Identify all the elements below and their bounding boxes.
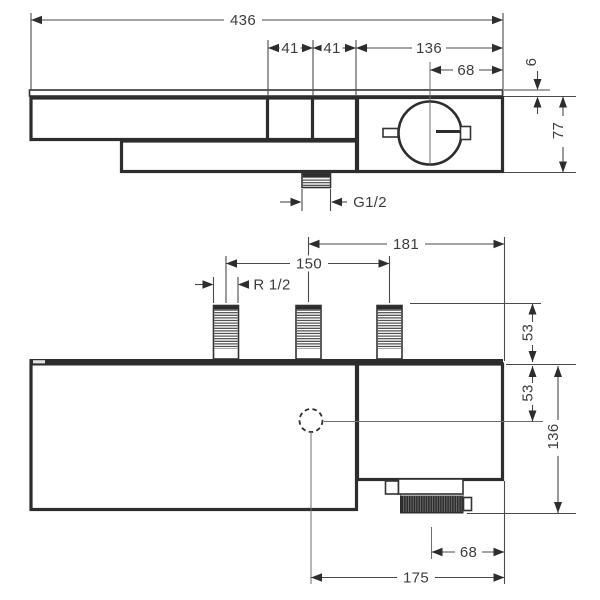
front-shelf-bar <box>31 98 357 140</box>
plan-left-body <box>31 363 357 510</box>
plan-knob-knurl <box>402 496 462 513</box>
dim-top-to-center: 53 <box>520 384 537 401</box>
dim-front-handle-offset: 68 <box>457 62 474 79</box>
dim-handle-span: 181 <box>393 236 419 253</box>
dim-outlet-thread: G1/2 <box>353 194 387 211</box>
front-outlet-cap <box>303 174 330 177</box>
dim-total-depth: 136 <box>545 424 562 450</box>
front-top-plate <box>30 90 503 96</box>
plan-pipe-1 <box>214 306 239 360</box>
plan-knob-tab <box>464 498 472 511</box>
dim-body-height: 77 <box>550 122 567 139</box>
technical-drawing: 436 41 41 136 68 6 77 <box>0 0 600 600</box>
dim-pipe-thread: R 1/2 <box>253 277 290 294</box>
dim-button1-width: 41 <box>281 40 298 57</box>
plan-pipe-3 <box>377 306 402 360</box>
dim-pipe-spacing: 150 <box>296 256 322 273</box>
plan-top-band-notch <box>33 360 45 363</box>
dim-plate-thickness: 6 <box>523 58 540 67</box>
dim-overall-width: 436 <box>230 12 256 29</box>
front-right-tab <box>461 127 471 140</box>
front-left-tab <box>383 129 398 138</box>
dim-pipe-length: 53 <box>520 324 537 341</box>
dim-button2-width: 41 <box>323 40 340 57</box>
front-view <box>30 62 503 188</box>
plan-top-band <box>30 359 504 366</box>
plan-view <box>30 306 544 514</box>
plan-knob-notch <box>386 481 399 494</box>
dim-outlet-offset: 175 <box>403 570 429 587</box>
plan-knob-collar <box>399 479 464 494</box>
front-lower-body <box>122 141 357 172</box>
drawing-canvas: 436 41 41 136 68 6 77 <box>0 0 600 600</box>
dim-right-section-width: 136 <box>416 40 442 57</box>
dim-plan-handle-offset: 68 <box>460 544 477 561</box>
front-outlet-thread-hatch <box>303 178 330 187</box>
plan-pipe-2 <box>296 306 321 360</box>
